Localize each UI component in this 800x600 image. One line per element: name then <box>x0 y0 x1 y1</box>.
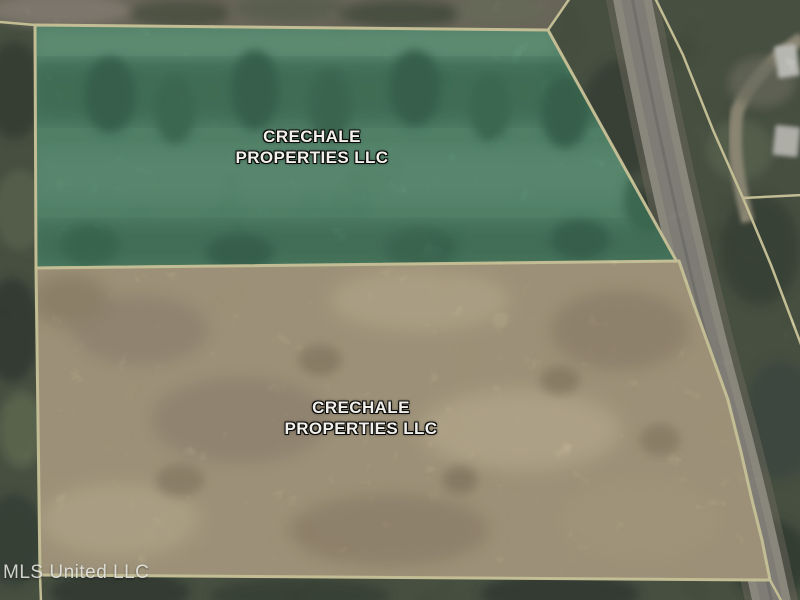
parcel-owner-line2: PROPERTIES LLC <box>187 147 437 168</box>
parcel-owner-line2: PROPERTIES LLC <box>236 418 486 439</box>
map-canvas <box>0 0 800 600</box>
parcel-label-south: CRECHALE PROPERTIES LLC <box>236 397 486 439</box>
parcel-owner-line1: CRECHALE <box>236 397 486 418</box>
watermark: MLS United LLC <box>3 562 149 584</box>
cloud-overlay <box>0 0 800 600</box>
aerial-parcel-map: CRECHALE PROPERTIES LLC CRECHALE PROPERT… <box>0 0 800 600</box>
parcel-label-north: CRECHALE PROPERTIES LLC <box>187 126 437 168</box>
parcel-owner-line1: CRECHALE <box>187 126 437 147</box>
